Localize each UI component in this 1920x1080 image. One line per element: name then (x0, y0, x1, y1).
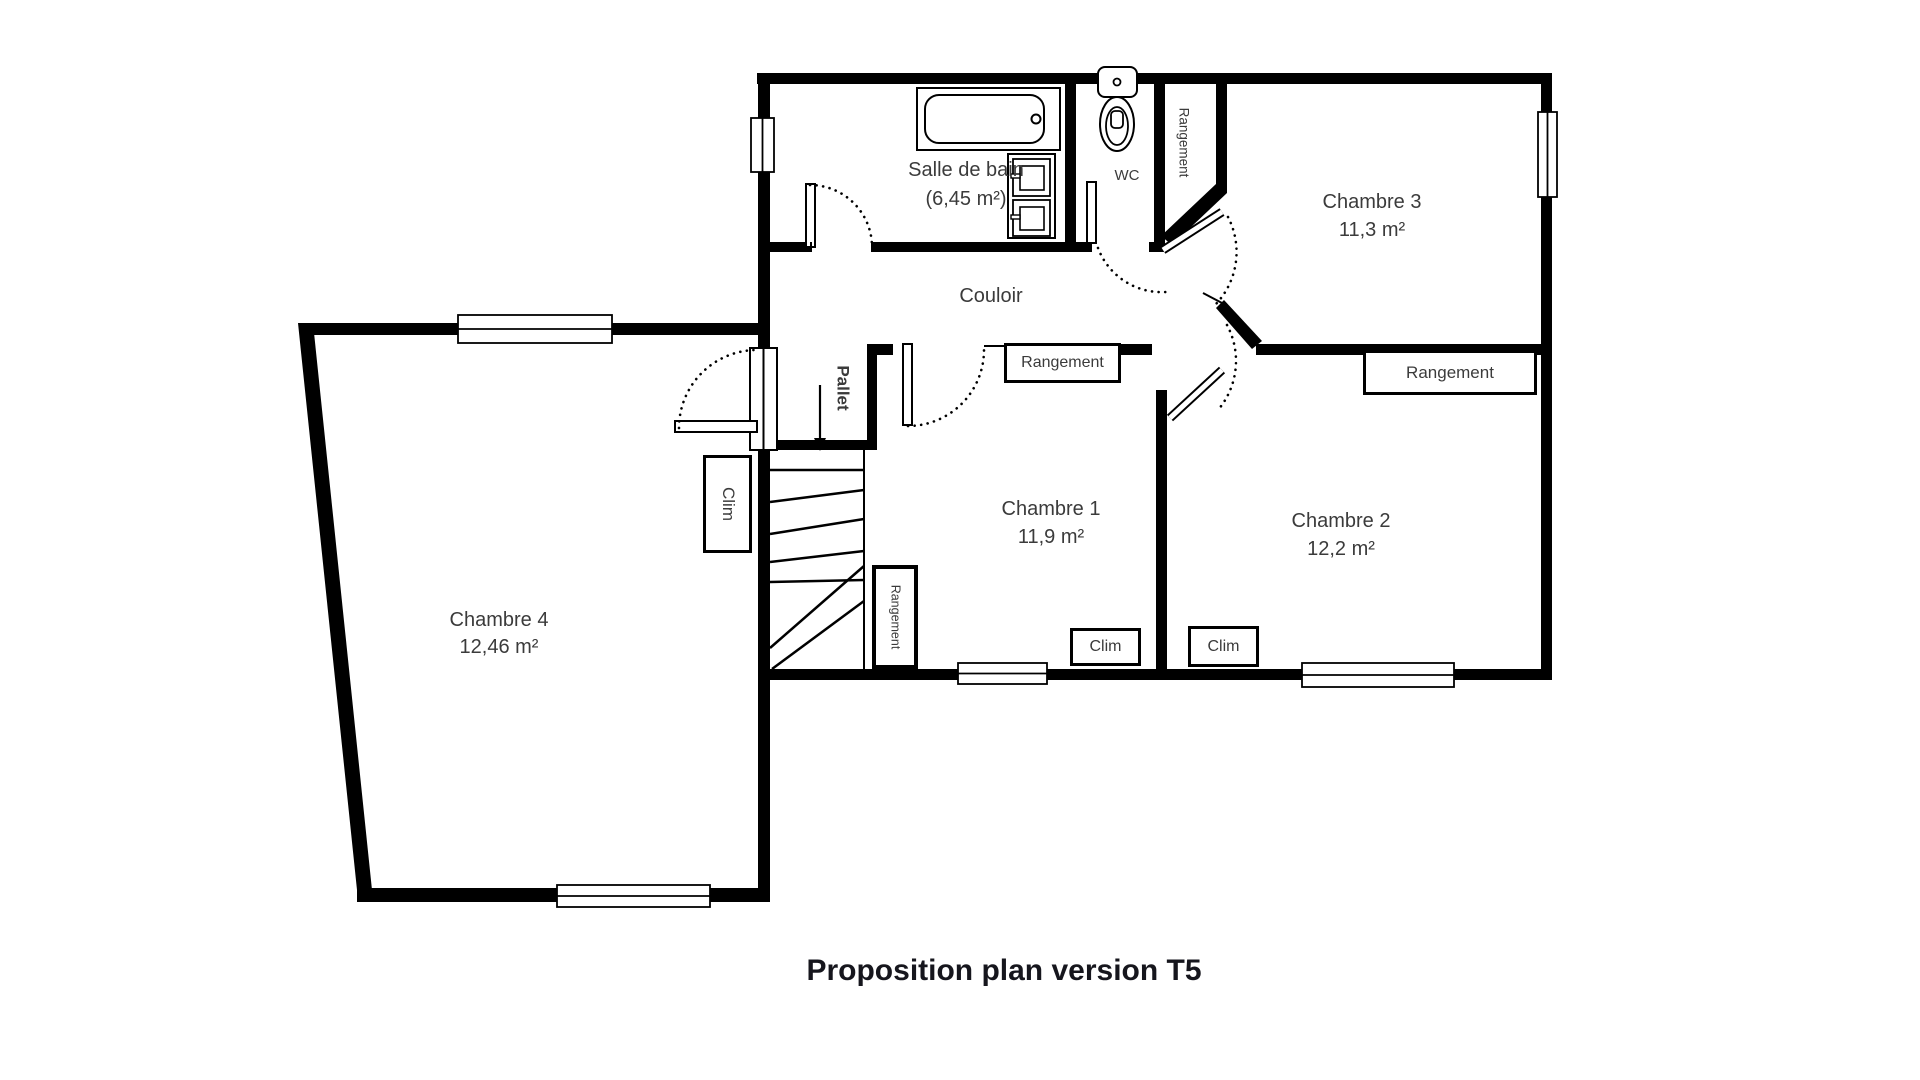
arc-chambre1-door (908, 350, 984, 426)
door-bath-leaf (806, 184, 815, 247)
wall-closet-east (1216, 84, 1227, 193)
rangement-box-stairs: Rangement (872, 565, 918, 669)
wall-left-spine (758, 73, 770, 902)
arc-bath-door (810, 185, 872, 247)
window-chambre1-bottom (958, 663, 1047, 684)
arc-wc-door (1098, 248, 1166, 292)
window-chambre2-bottom (1302, 663, 1454, 687)
room-area-chambre-1: 11,9 m² (1018, 525, 1084, 549)
rangement-box-chambre3: Rangement (1363, 350, 1537, 395)
room-label-couloir: Couloir (959, 284, 1022, 308)
pallet-arrow-icon (814, 385, 826, 451)
door-wc-leaf (1087, 182, 1096, 243)
window-chambre4-top (458, 315, 612, 343)
floor-plan-page: Salle de bain (6,45 m²) WC Couloir Chamb… (0, 0, 1920, 1080)
wall-ch1-north-b (1121, 344, 1152, 355)
doors (675, 182, 1222, 450)
room-area-chambre-3: 11,3 m² (1339, 218, 1405, 242)
room-area-chambre-4: 12,46 m² (460, 635, 539, 659)
window-right-wall (1538, 112, 1557, 197)
rangement-box-chambre1: Rangement (1004, 343, 1121, 383)
room-area-chambre-2: 12,2 m² (1307, 537, 1375, 561)
wall-chambre4-slanted (298, 323, 372, 890)
stairs (770, 450, 864, 669)
wall-top (757, 73, 1552, 84)
room-label-chambre-4: Chambre 4 (450, 608, 549, 632)
closet-rangement-label: Rangement (1162, 92, 1206, 192)
door-chambre2-leaf (1170, 370, 1222, 418)
room-area-salle-de-bain: (6,45 m²) (925, 187, 1006, 211)
pallet-label: Pallet (828, 352, 858, 424)
wall-corridor-north-a (768, 242, 811, 252)
clim-box-chambre2: Clim (1188, 626, 1259, 667)
room-label-salle-de-bain: Salle de bain (908, 158, 1024, 182)
wall-ch1-west (867, 344, 877, 450)
room-label-wc: WC (1115, 167, 1140, 185)
wall-corner-diagonal (1216, 300, 1262, 349)
room-label-chambre-2: Chambre 2 (1292, 509, 1391, 533)
toilet (1098, 67, 1137, 151)
clim-box-chambre1: Clim (1070, 628, 1141, 666)
room-label-chambre-1: Chambre 1 (1002, 497, 1101, 521)
door-chambre4-leaf (675, 421, 757, 432)
plan-title: Proposition plan version T5 (806, 954, 1201, 988)
door-chambre4-frame (750, 348, 777, 450)
wall-ch1-ch2-divider (1156, 390, 1167, 680)
window-chambre4-bottom (557, 885, 710, 907)
arc-chambre3-door (1216, 217, 1237, 304)
door-chambre1-leaf (903, 344, 912, 425)
clim-box-stairs: Clim (703, 455, 752, 553)
wall-bath-wc-divider (1065, 84, 1076, 252)
wall-corridor-north-b (872, 242, 1091, 252)
window-left-wall (751, 118, 774, 172)
room-label-chambre-3: Chambre 3 (1323, 190, 1422, 214)
arc-chambre2-door (1218, 325, 1236, 410)
bathtub (917, 88, 1060, 150)
arc-chambre4-door (679, 350, 757, 428)
